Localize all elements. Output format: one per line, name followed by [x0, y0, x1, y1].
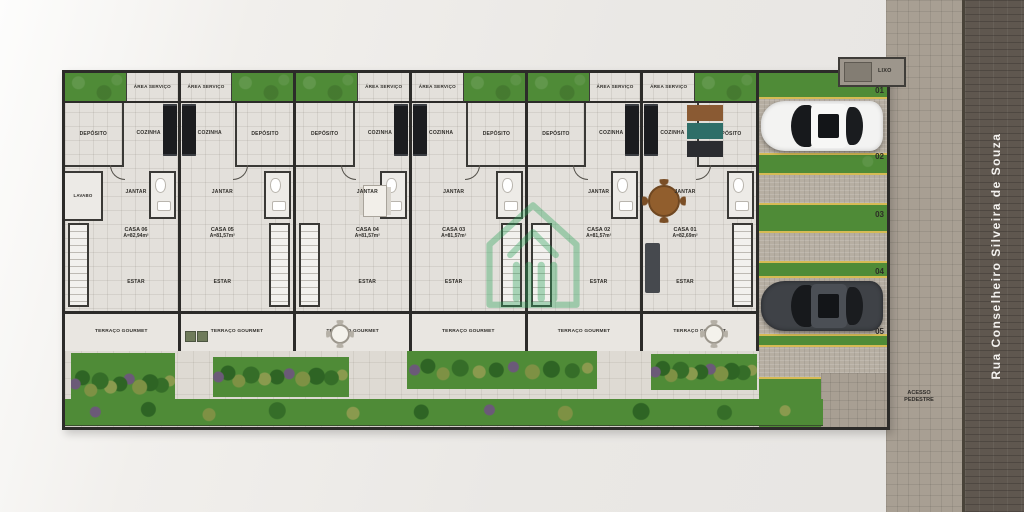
parking-space-number: 03: [875, 210, 884, 219]
house-title: CASA 06 A=82,94m²: [100, 227, 172, 239]
room-label-jantar: JANTAR: [331, 189, 403, 196]
house-casa-06: ÁREA SERVIÇO DEPÓSITO COZINHA LAVABO JAN…: [65, 73, 181, 351]
kitchen-counter: [394, 104, 408, 156]
room-area-servico: ÁREA SERVIÇO: [643, 73, 694, 103]
garden-patch: [694, 73, 756, 103]
garden-island: [213, 357, 349, 397]
room-label-lavabo: LAVABO: [73, 193, 92, 199]
builder-logo-watermark: [481, 197, 585, 311]
door-swing-arc: [110, 165, 125, 180]
room-label-area-servico: ÁREA SERVIÇO: [650, 84, 687, 90]
garden-patch: [296, 73, 358, 103]
trash-label: LIXO: [878, 68, 892, 75]
pedestrian-access-path: [821, 373, 887, 427]
room-label-jantar: JANTAR: [418, 189, 490, 196]
door-swing-arc: [696, 165, 711, 180]
room-label-deposito: DEPÓSITO: [251, 131, 278, 138]
trash-pad: [844, 62, 872, 82]
house-casa-04: ÁREA SERVIÇO DEPÓSITO COZINHA JANTAR CAS…: [296, 73, 412, 351]
room-deposito: DEPÓSITO: [466, 103, 525, 167]
room-label-estar: ESTAR: [100, 279, 172, 286]
room-label-deposito: DEPÓSITO: [483, 131, 510, 138]
parking-space-paver: [759, 231, 887, 263]
room-area-servico: ÁREA SERVIÇO: [181, 73, 232, 103]
access-label-line2: PEDESTRE: [888, 397, 950, 404]
room-label-estar: ESTAR: [331, 279, 403, 286]
room-label-deposito: DEPÓSITO: [311, 131, 338, 138]
room-label-cozinha: COZINHA: [599, 130, 623, 137]
stairs: [732, 223, 753, 307]
room-area-servico: ÁREA SERVIÇO: [412, 73, 463, 103]
room-deposito: DEPÓSITO: [528, 103, 587, 167]
room-label-terraco: TERRAÇO GOURMET: [202, 329, 272, 335]
room-label-estar: ESTAR: [418, 279, 490, 286]
house-area: A=82,69m²: [649, 233, 721, 239]
kitchen-counter: [163, 104, 177, 156]
house-area: A=81,57m²: [418, 233, 490, 239]
kitchen-counter: [625, 104, 639, 156]
room-area-servico: ÁREA SERVIÇO: [127, 73, 178, 103]
room-label-cozinha: COZINHA: [368, 130, 392, 137]
garden-patch: [231, 73, 293, 103]
room-label-jantar: JANTAR: [186, 189, 258, 196]
patio-table: [704, 324, 724, 344]
pedestrian-access-label: ACESSO PEDESTRE: [888, 390, 950, 404]
garden-patch: [65, 73, 127, 103]
room-label-jantar: JANTAR: [649, 189, 721, 196]
houses-row: ÁREA SERVIÇO DEPÓSITO COZINHA LAVABO JAN…: [65, 73, 759, 351]
house-area: A=81,57m²: [186, 233, 258, 239]
patio-table: [330, 324, 350, 344]
house-title: CASA 01 A=82,69m²: [649, 227, 721, 239]
house-title: CASA 05 A=81,57m²: [186, 227, 258, 239]
room-label-deposito: DEPÓSITO: [542, 131, 569, 138]
bathroom: [727, 171, 754, 219]
room-deposito: DEPÓSITO: [235, 103, 294, 167]
car-dark: [761, 281, 883, 331]
room-deposito: DEPÓSITO: [296, 103, 355, 167]
garden-island: [651, 354, 757, 390]
street: Rua Conselheiro Silveira de Souza: [962, 0, 1024, 512]
street-name-label: Rua Conselheiro Silveira de Souza: [989, 133, 1003, 380]
planter: [185, 331, 196, 342]
hedge-strip: [65, 399, 823, 426]
room-terraco-gourmet: TERRAÇO GOURMET: [296, 311, 409, 351]
room-label-deposito: DEPÓSITO: [80, 131, 107, 138]
garden-patch: [528, 73, 590, 103]
room-label-cozinha: COZINHA: [429, 130, 453, 137]
lot-plan: ÁREA SERVIÇO DEPÓSITO COZINHA LAVABO JAN…: [62, 70, 890, 430]
bathroom: [264, 171, 291, 219]
kitchen-cabinet: [687, 105, 723, 121]
kitchen-appliances: [687, 105, 723, 157]
garden-patch: [463, 73, 525, 103]
refrigerator: [687, 123, 723, 139]
access-label-line1: ACESSO: [888, 390, 950, 397]
house-title: CASA 04 A=81,57m²: [331, 227, 403, 239]
room-terraco-gourmet: TERRAÇO GOURMET: [65, 311, 178, 351]
room-terraco-gourmet: TERRAÇO GOURMET: [528, 311, 641, 351]
room-area-servico: ÁREA SERVIÇO: [590, 73, 641, 103]
stove: [687, 141, 723, 157]
room-area-servico: ÁREA SERVIÇO: [358, 73, 409, 103]
room-label-estar: ESTAR: [186, 279, 258, 286]
car-white: [761, 101, 883, 151]
room-label-jantar: JANTAR: [563, 189, 635, 196]
site-plan-canvas: Rua Conselheiro Silveira de Souza ACESSO…: [0, 0, 1024, 512]
stairs: [269, 223, 290, 307]
room-terraco-gourmet: TERRAÇO GOURMET: [181, 311, 294, 351]
room-label-cozinha: COZINHA: [136, 130, 160, 137]
car-sunroof: [818, 114, 839, 138]
parking-space-number: 04: [875, 267, 884, 276]
door-swing-arc: [465, 165, 480, 180]
room-label-area-servico: ÁREA SERVIÇO: [134, 84, 171, 90]
room-label-cozinha: COZINHA: [198, 130, 222, 137]
room-label-terraco: TERRAÇO GOURMET: [549, 329, 619, 335]
room-deposito: DEPÓSITO: [65, 103, 124, 167]
room-label-terraco: TERRAÇO GOURMET: [433, 329, 503, 335]
room-label-area-servico: ÁREA SERVIÇO: [187, 84, 224, 90]
room-label-area-servico: ÁREA SERVIÇO: [596, 84, 633, 90]
parking-space-number: 02: [875, 152, 884, 161]
room-terraco-gourmet: TERRAÇO GOURMET: [412, 311, 525, 351]
kitchen-counter: [644, 104, 658, 156]
room-lavabo: LAVABO: [65, 171, 103, 221]
sofa: [645, 243, 660, 293]
room-terraco-gourmet: TERRAÇO GOURMET: [643, 311, 756, 351]
parking-space-paver: [759, 173, 887, 205]
room-label-area-servico: ÁREA SERVIÇO: [419, 84, 456, 90]
kitchen-counter: [413, 104, 427, 156]
house-area: A=81,57m²: [331, 233, 403, 239]
kitchen-counter: [182, 104, 196, 156]
stairs: [68, 223, 89, 307]
trash-enclosure: LIXO: [838, 57, 906, 87]
room-label-estar: ESTAR: [649, 279, 721, 286]
room-label-area-servico: ÁREA SERVIÇO: [365, 84, 402, 90]
door-swing-arc: [573, 165, 588, 180]
garden-island: [407, 351, 597, 389]
parking-space-number: 01: [875, 86, 884, 95]
door-swing-arc: [341, 165, 356, 180]
room-label-terraco: TERRAÇO GOURMET: [86, 329, 156, 335]
planter: [197, 331, 208, 342]
stairs: [299, 223, 320, 307]
room-label-jantar: JANTAR: [100, 189, 172, 196]
house-area: A=82,94m²: [100, 233, 172, 239]
house-title: CASA 03 A=81,57m²: [418, 227, 490, 239]
parking-area: 01 02 03 04 05: [759, 73, 887, 427]
house-casa-01: ÁREA SERVIÇO DEPÓSITO COZINHA JANTAR CAS…: [643, 73, 759, 351]
house-casa-05: ÁREA SERVIÇO DEPÓSITO COZINHA JANTAR CAS…: [181, 73, 297, 351]
door-swing-arc: [233, 165, 248, 180]
car-sunroof: [818, 294, 839, 318]
room-label-cozinha: COZINHA: [660, 130, 684, 137]
